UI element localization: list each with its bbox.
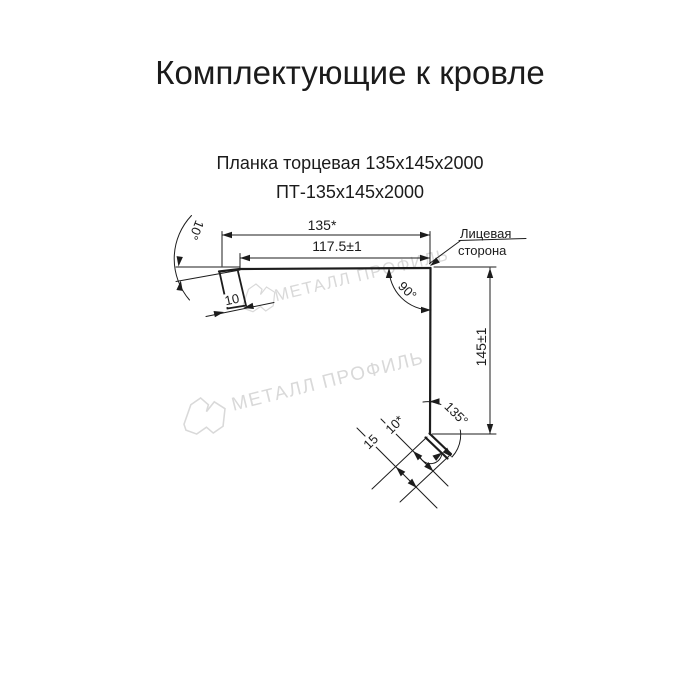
technical-drawing: 135* 117.5±1 145±1 90° 135° 10° 10 10* [0,0,700,700]
angle-corner-label: 90° [395,278,420,303]
angle-left-label: 10° [186,218,207,242]
dim-left-hem-label: 10 [223,291,240,309]
dim-top-width-tol-label: 117.5±1 [312,238,362,254]
profile-right-side [430,268,431,434]
arc-10 [174,216,191,301]
face-side-label-line2: сторона [458,243,507,258]
profile-top-flange [219,268,431,272]
face-side-label-line1: Лицевая [460,226,511,241]
spec-sheet: МЕТАЛЛ ПРОФИЛЬ МЕТАЛЛ ПРОФИЛЬ Комплектую… [0,0,700,700]
profile-outline [219,268,451,459]
dim-top-width-label: 135* [308,217,337,233]
dim-height-label: 145±1 [473,327,489,366]
